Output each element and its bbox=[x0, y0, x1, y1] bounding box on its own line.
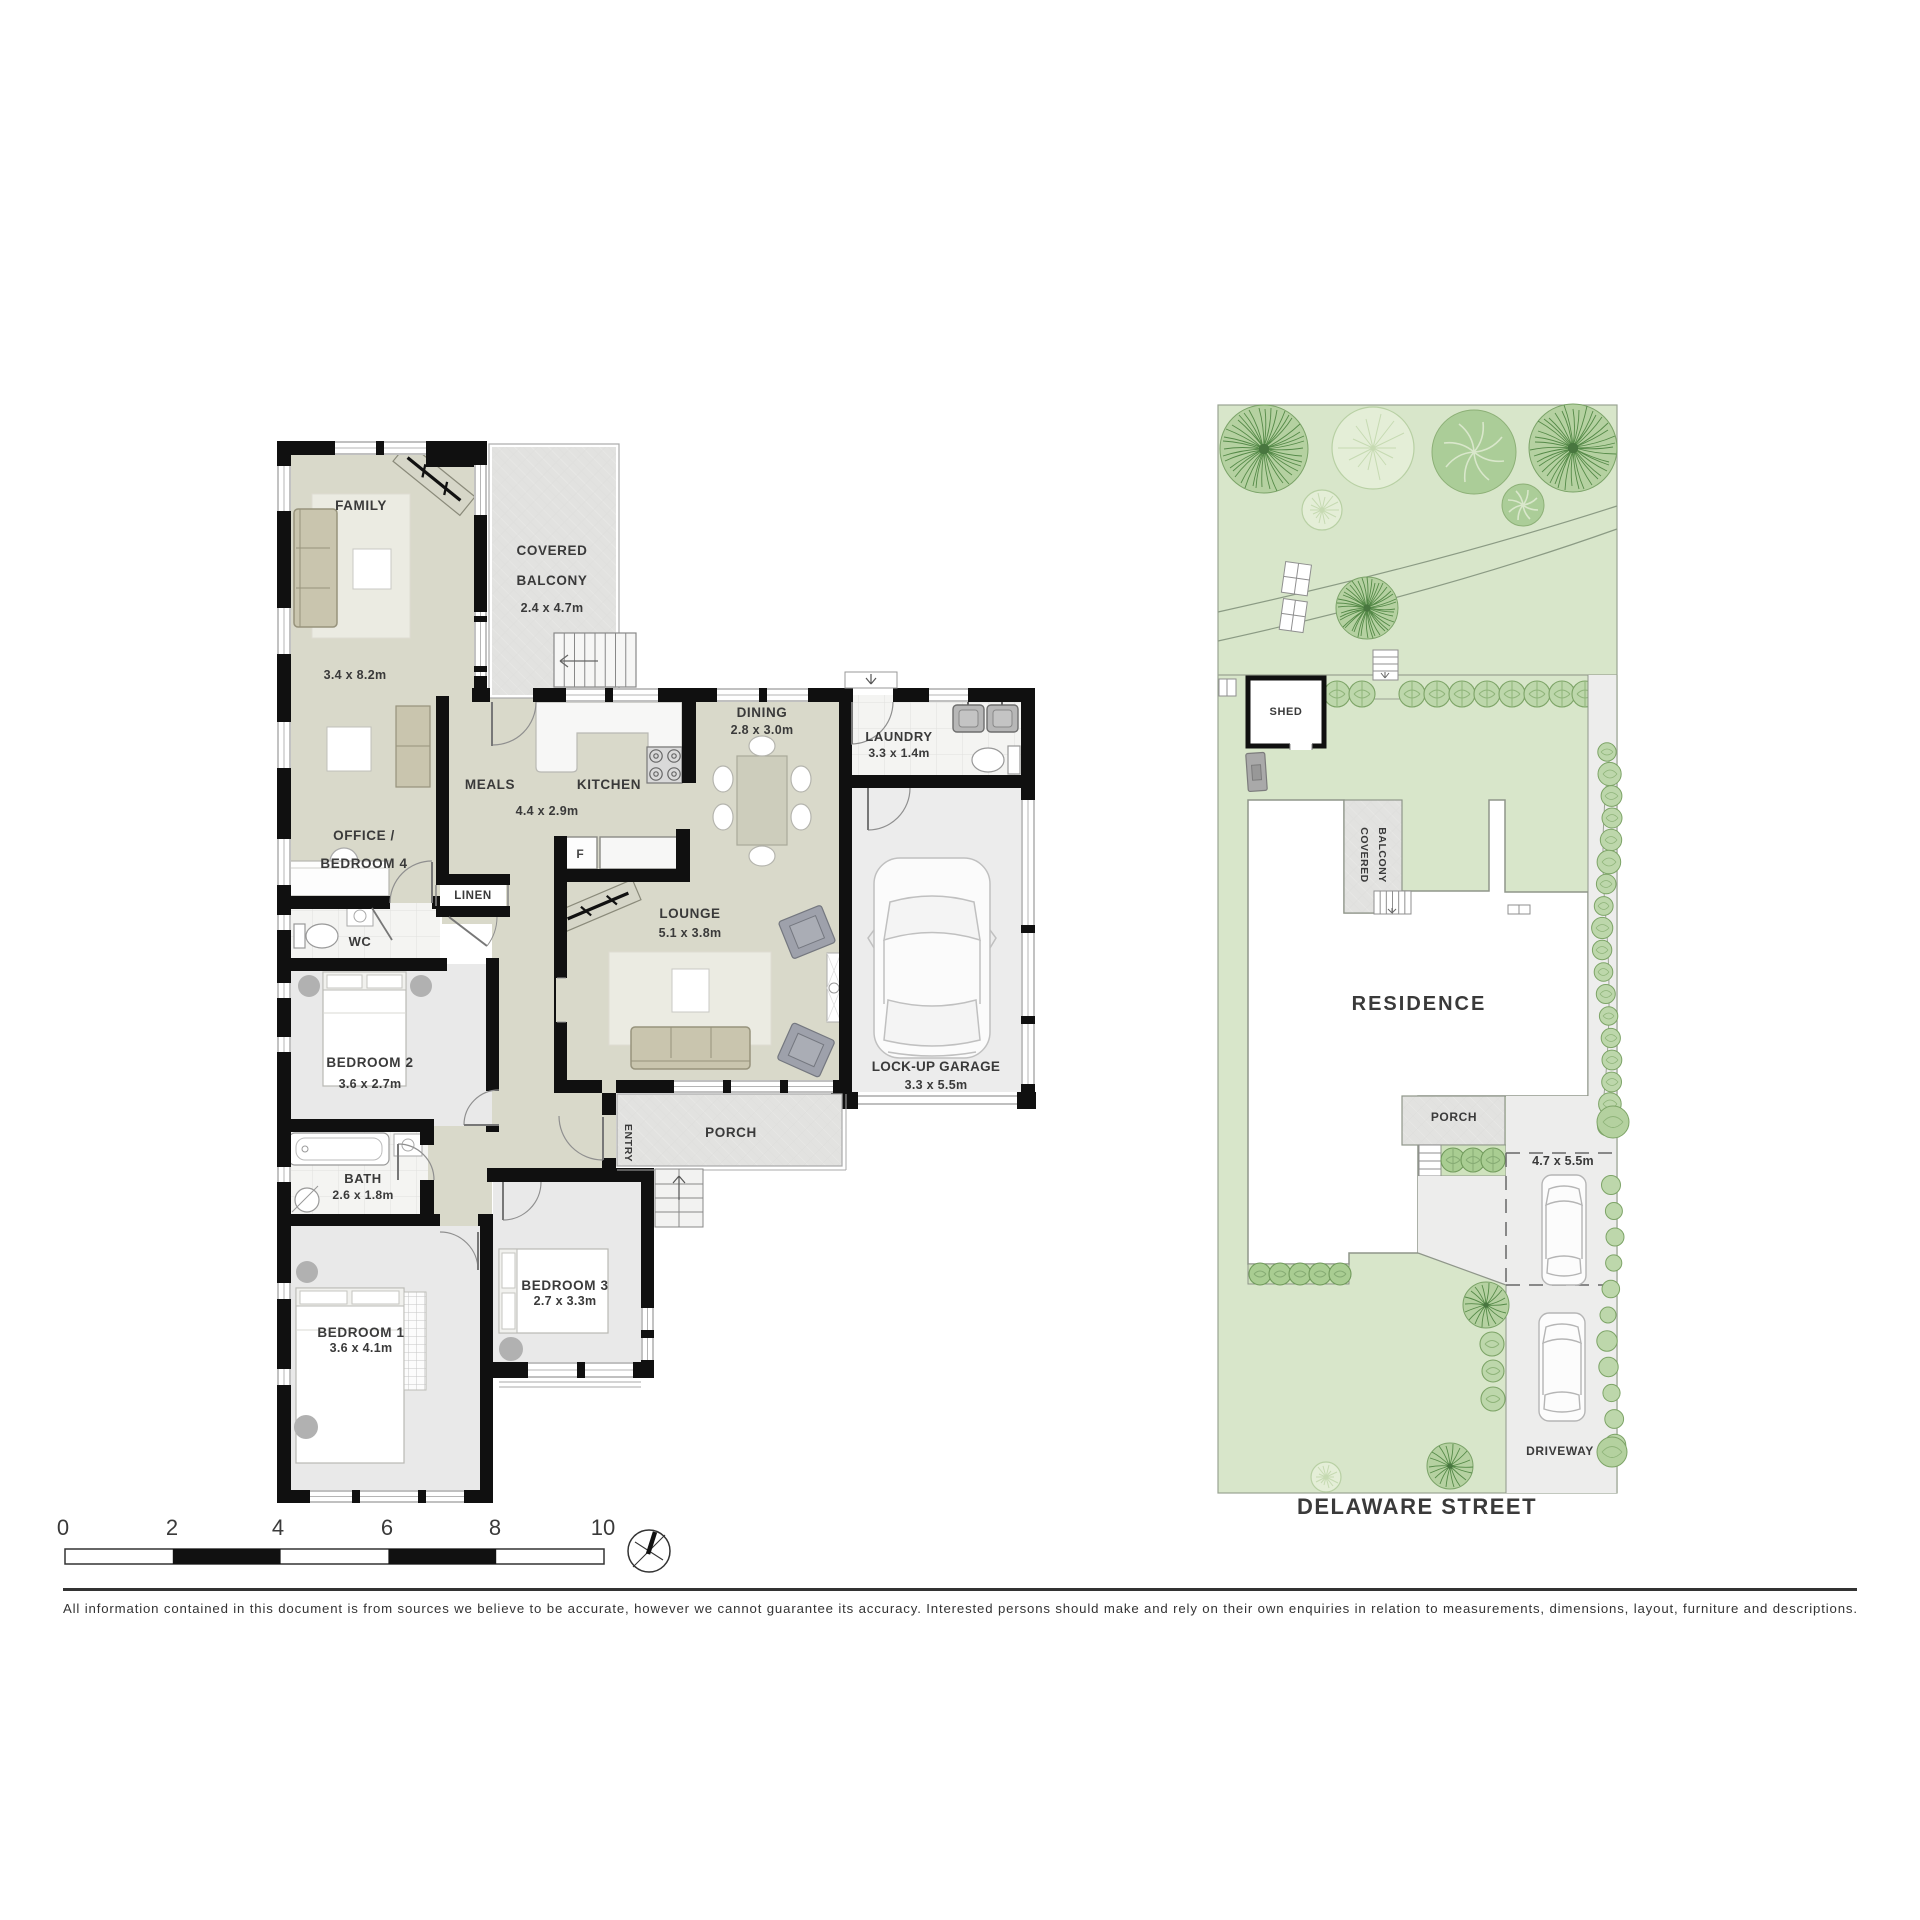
svg-text:PORCH: PORCH bbox=[705, 1125, 757, 1140]
svg-text:10: 10 bbox=[591, 1515, 615, 1540]
svg-text:4: 4 bbox=[272, 1515, 284, 1540]
svg-text:DELAWARE STREET: DELAWARE STREET bbox=[1297, 1494, 1537, 1519]
svg-text:2.6 x 1.8m: 2.6 x 1.8m bbox=[332, 1188, 393, 1202]
svg-text:5.1 x 3.8m: 5.1 x 3.8m bbox=[659, 926, 722, 940]
svg-text:BEDROOM 1: BEDROOM 1 bbox=[317, 1325, 404, 1340]
svg-text:8: 8 bbox=[489, 1515, 501, 1540]
svg-text:FAMILY: FAMILY bbox=[335, 498, 387, 513]
svg-text:BEDROOM 3: BEDROOM 3 bbox=[521, 1278, 608, 1293]
svg-text:RESIDENCE: RESIDENCE bbox=[1352, 993, 1487, 1015]
svg-text:LOCK-UP GARAGE: LOCK-UP GARAGE bbox=[872, 1059, 1000, 1074]
svg-text:COVERED: COVERED bbox=[517, 543, 588, 558]
svg-text:MEALS: MEALS bbox=[465, 777, 515, 792]
svg-text:BALCONY: BALCONY bbox=[1376, 827, 1388, 882]
svg-text:3.3 x 1.4m: 3.3 x 1.4m bbox=[868, 746, 929, 760]
svg-text:BATH: BATH bbox=[344, 1171, 382, 1186]
svg-text:F: F bbox=[576, 847, 583, 861]
svg-text:DRIVEWAY: DRIVEWAY bbox=[1526, 1444, 1594, 1458]
svg-text:WC: WC bbox=[349, 934, 372, 949]
svg-text:BEDROOM 4: BEDROOM 4 bbox=[320, 856, 407, 871]
svg-text:PORCH: PORCH bbox=[1431, 1110, 1477, 1124]
svg-text:6: 6 bbox=[381, 1515, 393, 1540]
svg-text:BEDROOM 2: BEDROOM 2 bbox=[326, 1055, 413, 1070]
svg-text:3.6 x 2.7m: 3.6 x 2.7m bbox=[339, 1077, 402, 1091]
svg-text:KITCHEN: KITCHEN bbox=[577, 777, 641, 792]
svg-text:SHED: SHED bbox=[1270, 706, 1303, 718]
svg-text:4.4 x 2.9m: 4.4 x 2.9m bbox=[516, 804, 579, 818]
svg-text:LINEN: LINEN bbox=[454, 890, 492, 902]
svg-text:4.7 x 5.5m: 4.7 x 5.5m bbox=[1532, 1154, 1594, 1168]
svg-text:All information contained in t: All information contained in this docume… bbox=[63, 1601, 1857, 1616]
svg-text:COVERED: COVERED bbox=[1358, 827, 1370, 882]
svg-text:3.6 x 4.1m: 3.6 x 4.1m bbox=[330, 1341, 393, 1355]
svg-text:LAUNDRY: LAUNDRY bbox=[865, 729, 932, 744]
svg-text:DINING: DINING bbox=[737, 705, 788, 720]
svg-text:0: 0 bbox=[57, 1515, 69, 1540]
svg-text:3.4 x 8.2m: 3.4 x 8.2m bbox=[324, 668, 387, 682]
svg-text:3.3 x 5.5m: 3.3 x 5.5m bbox=[905, 1078, 968, 1092]
svg-text:LOUNGE: LOUNGE bbox=[659, 906, 720, 921]
svg-text:2.4 x 4.7m: 2.4 x 4.7m bbox=[521, 601, 584, 615]
svg-text:ENTRY: ENTRY bbox=[622, 1124, 634, 1162]
svg-text:2: 2 bbox=[166, 1515, 178, 1540]
svg-text:2.8 x 3.0m: 2.8 x 3.0m bbox=[731, 723, 794, 737]
svg-text:BALCONY: BALCONY bbox=[517, 573, 588, 588]
svg-text:OFFICE /: OFFICE / bbox=[333, 828, 395, 843]
svg-text:2.7 x 3.3m: 2.7 x 3.3m bbox=[534, 1294, 597, 1308]
